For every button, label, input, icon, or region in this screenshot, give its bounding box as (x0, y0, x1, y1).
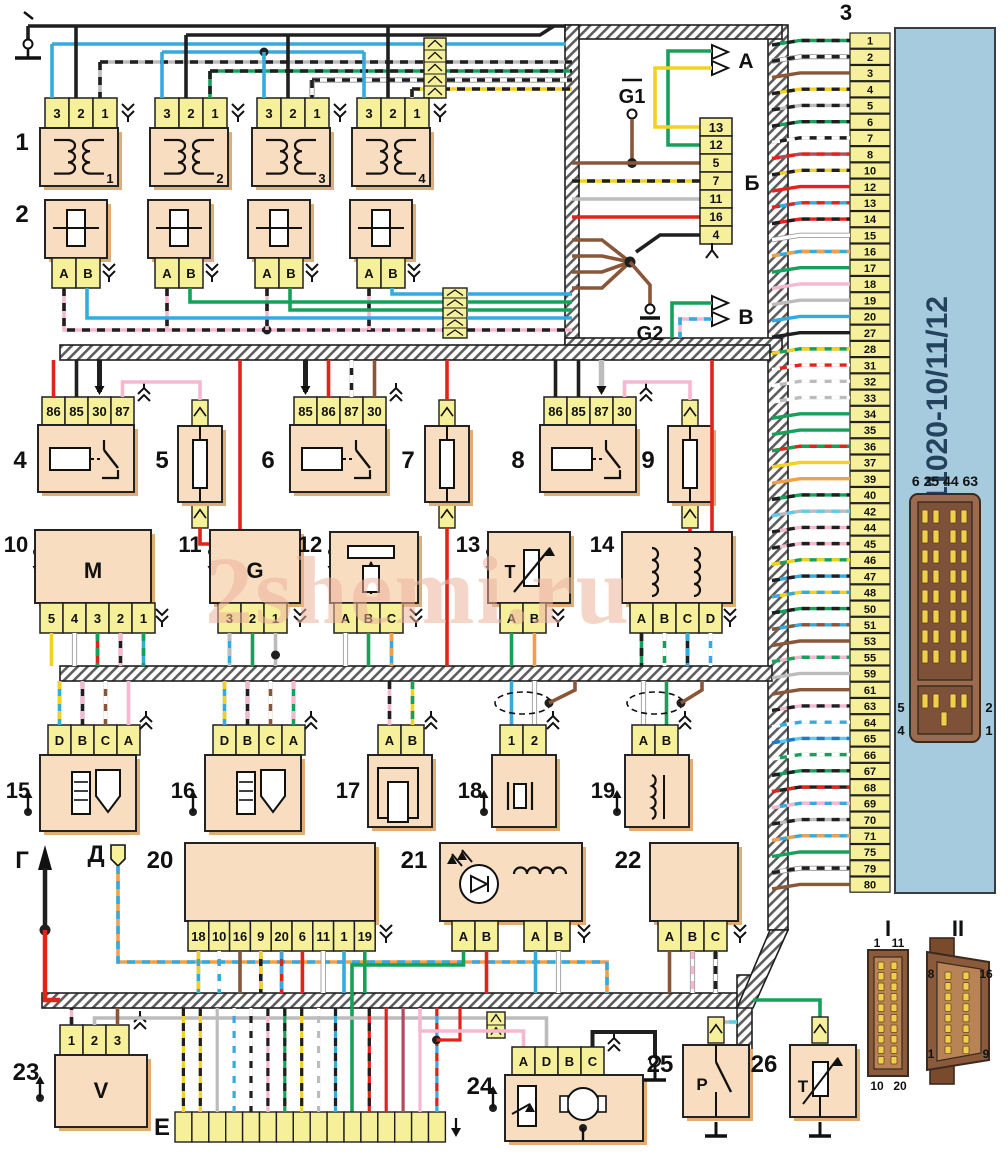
ecu-pin-number: 18 (864, 279, 876, 291)
ecu-pin-number: 4 (867, 84, 874, 96)
coil-unit-number: 2 (216, 171, 223, 186)
output-arrow-B-icon (712, 312, 728, 326)
ecu-aux-connector-lower (918, 686, 972, 734)
sensor-13-pin-label: B (530, 611, 539, 626)
block-24-pin-label: A (519, 1054, 529, 1069)
ecu-pin-number: 39 (864, 474, 876, 486)
fuse-icon (440, 440, 454, 488)
sensor-10-pin-label: 5 (48, 611, 55, 626)
ecu-pin-number: 37 (864, 458, 876, 470)
sensor-12-pin-label: A (341, 611, 351, 626)
connector-II-corner: 8 (928, 967, 935, 981)
shield-box-top (565, 25, 782, 39)
connector-II-slot (945, 1046, 951, 1054)
connector-I-slot (891, 1046, 897, 1054)
connector-arrow-icon (156, 609, 168, 615)
connector-arrow-icon (140, 716, 152, 722)
connector-arrow-icon (425, 716, 437, 722)
sensor-15-pin-label: C (101, 733, 111, 748)
sensor-11-mark: G (246, 558, 263, 583)
bus-bar-2 (60, 666, 772, 681)
wire-brown (630, 262, 650, 304)
sensor-14-pin-label: D (706, 611, 715, 626)
led-icon (460, 865, 498, 903)
connector-I-slot (878, 973, 884, 981)
connector-II-corner: 1 (928, 1047, 935, 1061)
sensor-15-pin-label: B (78, 733, 87, 748)
resistor-icon (363, 566, 379, 592)
connector-II-slot (963, 1036, 969, 1044)
connector-II-slot (945, 1014, 951, 1022)
connector-arrow-icon (434, 104, 446, 110)
connector-I-corner: 10 (870, 1079, 884, 1093)
motor-brush-icon (598, 1096, 606, 1112)
sensor-14-pin-label: A (637, 611, 647, 626)
connector-arrow-icon (547, 723, 559, 729)
injector-3-pin-label: A (262, 266, 272, 281)
ecu-pin-number: 55 (864, 652, 876, 664)
ecu-pin-number: 79 (864, 863, 876, 875)
ecu-aux-slot (961, 510, 967, 523)
sensor-19 (625, 755, 689, 827)
injector-3-pin-label: B (286, 266, 295, 281)
coil-unit-number: 3 (318, 171, 325, 186)
sensor-16-pin-label: D (220, 733, 229, 748)
connector-arrow-icon (410, 609, 422, 615)
connector-arrow-icon (552, 609, 564, 615)
ecu-aux-slot (933, 510, 939, 523)
inline-connector (439, 400, 455, 426)
ignition-coil-2-pin-label: 3 (163, 106, 170, 121)
block-20-pin-label: 1 (340, 929, 347, 944)
coil-unit-number: 4 (418, 171, 426, 186)
connector-arrow-icon (734, 932, 746, 938)
block-20-pin-label: 18 (191, 929, 205, 944)
wire-arrowhead (301, 386, 311, 395)
connector-II-slot (945, 1025, 951, 1033)
ecu-pin-number: 13 (864, 198, 876, 210)
connector-II-slot (963, 1004, 969, 1012)
ecu-pin-number: 50 (864, 604, 876, 616)
ecu-pin-number: 80 (864, 880, 876, 892)
relay-8-callout: 8 (511, 447, 524, 474)
connector-I-slot (891, 1015, 897, 1023)
heater-icon (237, 772, 255, 814)
ecu-pin-number: 19 (864, 295, 876, 307)
sensor-15-callout: 15 (6, 778, 30, 803)
connector-arrow-icon (232, 104, 244, 110)
heater-icon (72, 772, 90, 814)
injector-group-callout: 2 (15, 201, 28, 228)
connector-arrow-icon (206, 271, 218, 277)
ecu-pin-number: 45 (864, 539, 876, 551)
fuel-pump-motor-icon (567, 1088, 599, 1120)
ecu-aux-side-label: 2 (985, 700, 992, 715)
label-G2: G2 (637, 323, 664, 345)
ecu-pin-number: 1 (867, 36, 873, 48)
connector-arrow-icon (134, 1023, 146, 1029)
connector-arrow-icon (679, 723, 691, 729)
label-D: Д (87, 841, 104, 868)
connector-II-slot (945, 1036, 951, 1044)
connector-I-slot (878, 1046, 884, 1054)
fuse-icon (193, 440, 207, 488)
inline-connector (682, 400, 698, 426)
relay-6-pin-label: 86 (321, 404, 335, 419)
connector-arrow-icon (206, 264, 218, 270)
sensor-14-pin-label: C (683, 611, 693, 626)
connector-arrow-icon (294, 609, 306, 615)
wire-green (753, 1000, 820, 1017)
connector-II-slot (963, 972, 969, 980)
inline-connector (192, 400, 208, 426)
arrow-up-icon (38, 845, 52, 870)
crank-sensor-icon (514, 784, 526, 808)
strip-B-pin-label: 7 (713, 174, 720, 188)
ignition-coil-4-pin-label: 1 (413, 106, 420, 121)
coil-group-callout: 1 (15, 129, 28, 156)
ecu-aux-slot (961, 530, 967, 543)
connector-II-slot (963, 1025, 969, 1033)
sensor-17-pin-label: A (385, 733, 395, 748)
sensor-10-pin-label: 3 (94, 611, 101, 626)
connector-I-corner: 11 (892, 936, 905, 950)
ignition-coil-1-pin-label: 2 (77, 106, 84, 121)
connector-arrow-icon (380, 925, 392, 931)
strip-E-cell (344, 1112, 361, 1142)
connector-arrow-icon (294, 616, 306, 622)
ecu-aux-slot (950, 570, 956, 583)
ecu-callout: 3 (840, 0, 852, 25)
relay-6-pin-label: 87 (344, 404, 358, 419)
strip-B-pin-label: 11 (710, 192, 723, 206)
ecu-pin-number: 61 (864, 685, 876, 697)
ecu-aux-slot (922, 510, 928, 523)
block-26-callout: 26 (751, 1051, 778, 1078)
strip-B-pin-label: 12 (709, 138, 723, 152)
ecu-aux-slot (933, 590, 939, 603)
connector-I-slot (878, 983, 884, 991)
ecu-pin-number: 12 (864, 182, 876, 194)
ecu-pin-number: 15 (864, 230, 876, 242)
relay-4-callout: 4 (13, 447, 27, 474)
connector-arrow-icon (103, 264, 115, 270)
junction-dot (271, 651, 280, 660)
connector-II-inner (937, 962, 981, 1061)
ecu-pin-number: 34 (864, 409, 877, 421)
sensor-15-pin-label: A (124, 733, 134, 748)
connector-I-corner: 20 (893, 1079, 907, 1093)
shield-ellipse (627, 692, 683, 714)
connector-I-slot (891, 973, 897, 981)
connector-arrow-icon (138, 388, 150, 394)
thermistor-icon (813, 1062, 828, 1096)
strip-E-cell (175, 1112, 192, 1142)
ecu-aux-slot (922, 570, 928, 583)
ecu-aux-slot (950, 650, 956, 663)
output-arrow-A-icon (712, 61, 728, 75)
ecu-pin-number: 31 (864, 360, 876, 372)
ignition-coil-4-pin-label: 2 (389, 106, 396, 121)
strip-B-pin-label: 4 (713, 228, 720, 242)
strip-E-cell (293, 1112, 310, 1142)
connector-arrow-icon (103, 271, 115, 277)
ecu-pin-number: 10 (864, 166, 876, 178)
connector-I-slot (891, 1057, 897, 1065)
sensor-18-pin-label: 1 (508, 733, 515, 748)
fuse-9-callout: 9 (641, 447, 654, 474)
sensor-10-callout: 10 (4, 532, 28, 557)
sensor-17-callout: 17 (336, 778, 360, 803)
ecu-aux-slot (933, 650, 939, 663)
potentiometer-icon (348, 546, 394, 558)
ecu-pin-number: 8 (867, 149, 873, 161)
connector-arrow-icon (640, 388, 652, 394)
block-24-callout: 24 (467, 1073, 494, 1100)
ecu-pin-number: 32 (864, 377, 876, 389)
ecu-aux-connector-label: 6 25 44 63 (912, 473, 978, 489)
right-shield-wall (768, 25, 788, 930)
block-20-pin-label: 6 (299, 929, 306, 944)
connector-arrow-icon (334, 111, 346, 117)
ecu-pin-number: 27 (864, 328, 876, 340)
strip-E-cell (276, 1112, 293, 1142)
connector-arrow-icon (306, 264, 318, 270)
sensor-13-callout: 13 (456, 532, 480, 557)
block-20-pin-label: 11 (316, 929, 330, 944)
strip-E-cell (243, 1112, 260, 1142)
ecu-pin-number: 51 (864, 620, 876, 632)
connector-arrow-icon (390, 388, 402, 394)
wire-red (45, 930, 60, 1000)
relay-6-pin-label: 85 (298, 404, 312, 419)
ecu-aux-slot (933, 570, 939, 583)
sensor-14 (622, 532, 732, 603)
connector-I-slot (878, 1057, 884, 1065)
ecu-pin-number: 48 (864, 588, 876, 600)
connector-II-slot (963, 993, 969, 1001)
ecu-pin-number: 63 (864, 701, 876, 713)
ecu-aux-slot (933, 530, 939, 543)
sensor-11-pin-label: 2 (249, 611, 256, 626)
ecu-aux-slot (961, 550, 967, 563)
ecu-pin-number: 40 (864, 490, 876, 502)
wire-brown (681, 681, 702, 703)
ecu-pin-number: 70 (864, 815, 876, 827)
ecu-aux-slot (961, 610, 967, 623)
ecu-pin-number: 20 (864, 312, 876, 324)
connector-I-slot (891, 1004, 897, 1012)
ecu-pin-number: 71 (864, 831, 876, 843)
sensor-12-callout: 12 (298, 532, 322, 557)
block-20-pin-label: 16 (233, 929, 247, 944)
ecu-aux-slot (961, 650, 967, 663)
ecu-aux-slot (922, 530, 928, 543)
connector-arrow-icon (232, 111, 244, 117)
bus-bar-3 (42, 993, 739, 1008)
connector-arrow-icon (334, 104, 346, 110)
strip-E-cell (310, 1112, 327, 1142)
wire-arrowhead (451, 1128, 461, 1137)
ecu-aux-slot (922, 590, 928, 603)
wiring-diagram-svg: 132113212321332142ABABABABАВG11312571116… (0, 0, 1008, 1155)
connector-arrow-icon (380, 932, 392, 938)
relay-4-pin-label: 85 (69, 404, 83, 419)
connector-arrow-icon (640, 395, 652, 401)
ecu-aux-slot (933, 630, 939, 643)
strip-B-pin-label: 13 (709, 120, 723, 135)
block-26-mark: T (798, 1077, 809, 1096)
block-21-left-pin-label: A (459, 929, 469, 944)
ecu-pin-number: 69 (864, 799, 876, 811)
ignition-coil-1-pin-label: 3 (53, 106, 60, 121)
relay-8-pin-label: 85 (571, 404, 585, 419)
ecu-aux-slot (961, 694, 967, 708)
ecu-pin-number: 35 (864, 425, 876, 437)
connector-I-slot (878, 1015, 884, 1023)
connector-II-corner: 16 (979, 967, 993, 981)
block-20-pin-label: 9 (257, 929, 264, 944)
connector-arrow-icon (552, 616, 564, 622)
connector-I-slot (891, 1025, 897, 1033)
g2-ring (646, 305, 655, 314)
sensor-16-callout: 16 (171, 778, 195, 803)
block-22-pin-label: B (688, 929, 697, 944)
sensor-11-pin-label: 3 (226, 611, 233, 626)
ecu-pin-number: 75 (864, 847, 876, 859)
sensor-13-pin-label: A (507, 611, 517, 626)
ecu-pin-number: 36 (864, 441, 876, 453)
ecu-pin-number: 66 (864, 750, 876, 762)
ecu-aux-slot (933, 550, 939, 563)
wire-arrowhead (597, 386, 607, 395)
relay-coil-icon (552, 448, 592, 470)
injector-1-pin-label: B (83, 266, 92, 281)
connector-arrow-icon (140, 723, 152, 729)
connector-arrow-icon (306, 271, 318, 277)
bus-bar-1 (60, 345, 770, 360)
sensor-19-callout: 19 (591, 778, 615, 803)
wire-green (290, 288, 443, 310)
block-25-mark: P (696, 1075, 707, 1094)
block-24-pin-label: B (565, 1054, 574, 1069)
connector-arrow-icon (305, 716, 317, 722)
ecu-aux-slot (922, 694, 928, 708)
connector-I-label: I (885, 916, 891, 941)
relay-8-pin-label: 87 (594, 404, 608, 419)
wiring-diagram-root: 132113212321332142ABABABABАВG11312571116… (0, 0, 1008, 1155)
connector-I-slot (878, 1036, 884, 1044)
connector-arrow-icon (679, 716, 691, 722)
block-22-callout: 22 (615, 847, 642, 874)
ecu-pin-number: 17 (864, 263, 876, 275)
coil-unit-number: 1 (106, 171, 113, 186)
relay-4-pin-label: 87 (115, 404, 129, 419)
connector-I-slot (891, 983, 897, 991)
injector-2-pin-label: B (186, 266, 195, 281)
sensor-18-callout: 18 (458, 778, 482, 803)
connector-II-slot (963, 1014, 969, 1022)
connector-arrow-icon (305, 723, 317, 729)
ecu-aux-slot (922, 610, 928, 623)
wire-dash-pink-blue (680, 319, 712, 338)
ecu-aux-slot (950, 530, 956, 543)
ignition-coil-3-pin-label: 3 (265, 106, 272, 121)
shield-ellipse (495, 692, 551, 714)
ground-ring (24, 40, 33, 49)
motor-brush-icon (560, 1096, 568, 1112)
connector-II-corner: 9 (983, 1047, 990, 1061)
ecu-pin-number: 64 (864, 717, 877, 729)
strip-E-cell (209, 1112, 226, 1142)
connector-arrow-icon (724, 609, 736, 615)
ecu-aux-slot (961, 630, 967, 643)
sensor-11-pin-label: 1 (272, 611, 279, 626)
ignition-coil-3-pin-label: 1 (313, 106, 320, 121)
relay-6-callout: 6 (261, 447, 274, 474)
connector-arrow-icon (608, 1038, 620, 1044)
sensor-19-pin-label: A (639, 733, 649, 748)
block-22-pin-label: C (711, 929, 721, 944)
wire-red (437, 1008, 461, 1040)
ecu-pin-number: 46 (864, 555, 876, 567)
ecu-aux-slot (922, 550, 928, 563)
sensor-12-pin-label: B (364, 611, 373, 626)
ecu-aux-slot (950, 590, 956, 603)
sensor-10-pin-label: 1 (140, 611, 147, 626)
ignition-coil-2-pin-label: 2 (187, 106, 194, 121)
connector-II-slot (945, 1004, 951, 1012)
sensor-12-pin-label: C (387, 611, 397, 626)
inline-connector (812, 1017, 828, 1043)
strip-E-cell (260, 1112, 277, 1142)
connector-I-slot (878, 1004, 884, 1012)
connector-arrow-icon (156, 616, 168, 622)
connector-arrow-icon (410, 616, 422, 622)
sensor-10-mark: M (84, 558, 102, 583)
ecu-pin-number: 67 (864, 766, 876, 778)
sensor-18-pin-label: 2 (531, 733, 538, 748)
wire-pink-blue (680, 319, 712, 338)
ignition-coil-4-pin-label: 3 (365, 106, 372, 121)
g1-ring (628, 110, 637, 119)
label-G-ground: Г (15, 847, 29, 874)
injector-4-pin-label: A (364, 266, 374, 281)
connector-II-slot (963, 1046, 969, 1054)
connector-arrow-icon (578, 925, 590, 931)
ecu-aux-slot (950, 694, 956, 708)
connector-II-slot (945, 993, 951, 1001)
connector-arrow-icon (408, 264, 420, 270)
branch-fork-icon (706, 243, 718, 258)
connector-arrow-icon (734, 925, 746, 931)
ecu-pin-number: 68 (864, 782, 876, 794)
ecu-aux-slot (941, 712, 947, 726)
wire-brown (549, 681, 575, 703)
sensor-13-mark: T (505, 562, 516, 582)
connector-arrow-icon (724, 616, 736, 622)
ecu-pin-number: 6 (867, 117, 873, 129)
strip-E-cell (226, 1112, 243, 1142)
fuse-icon (683, 440, 697, 488)
ecu-pin-number: 5 (867, 101, 873, 113)
connector-arrow-icon (122, 111, 134, 117)
sensor-10-pin-label: 2 (117, 611, 124, 626)
injector-1-pin-label: A (59, 266, 69, 281)
ecu-pin-number: 7 (867, 133, 873, 145)
inline-connector (708, 1017, 724, 1043)
sensor-19-pin-label: B (662, 733, 671, 748)
